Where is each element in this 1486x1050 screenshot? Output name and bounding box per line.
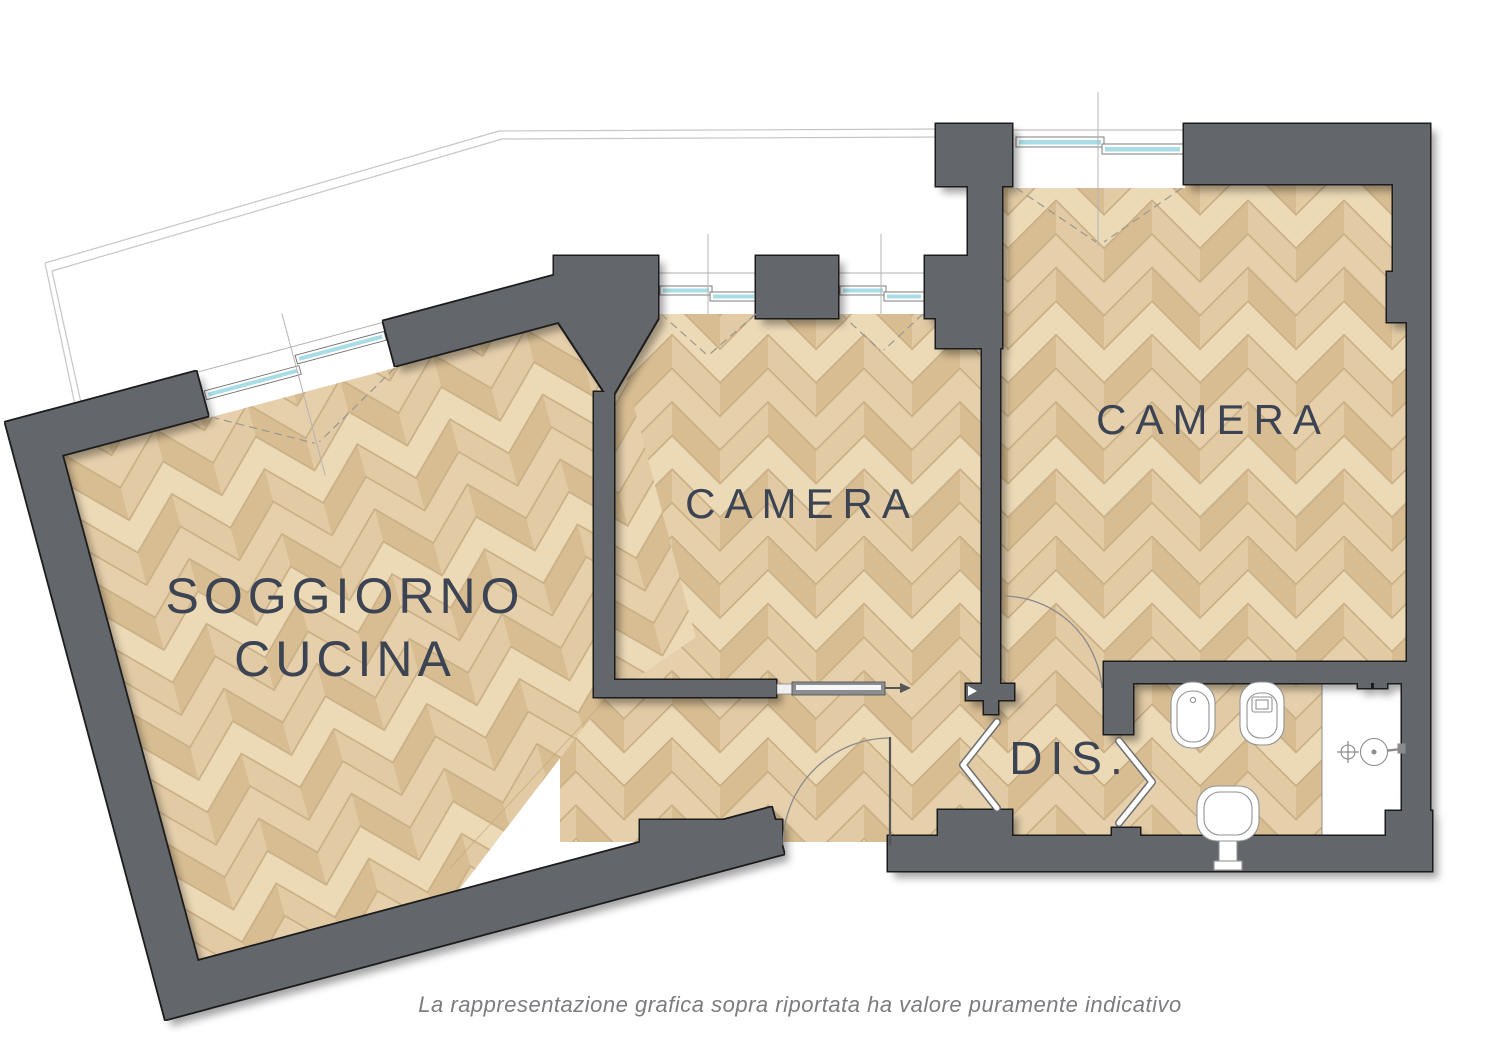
wall-soap-block-1	[1358, 678, 1371, 688]
label-dis: DIS.	[1009, 732, 1130, 784]
wall-camera2-topleft-chunk	[936, 124, 1012, 186]
wall-camera1-bottom	[594, 680, 776, 697]
floorplan-page: SOGGIORNO CUCINA CAMERA CAMERA DIS. La r…	[0, 0, 1486, 1050]
label-soggiorno: SOGGIORNO	[166, 568, 525, 624]
wall-shared-camera1-camera2	[982, 348, 1000, 686]
wall-pillar-camera1	[756, 256, 838, 318]
label-cucina: CUCINA	[234, 631, 456, 687]
bidet-icon	[1171, 682, 1215, 748]
wall-t-stub-tail	[984, 700, 998, 714]
wall-soap-block-2	[1374, 678, 1387, 688]
toilet-icon	[1240, 682, 1284, 745]
wall-camera2-left-chunk	[936, 294, 1002, 348]
wall-bifold-right-block	[1112, 828, 1140, 852]
label-camera-1: CAMERA	[685, 480, 919, 527]
wall-bathroom-left	[1104, 662, 1133, 734]
wall-camera2-left-upper	[968, 186, 1002, 294]
hall-floor	[560, 680, 1002, 842]
wall-junction	[554, 256, 658, 318]
wall-hall-bottom-step	[640, 820, 782, 854]
wall-corner-block	[1386, 811, 1432, 843]
floorplan-drawing: SOGGIORNO CUCINA CAMERA CAMERA DIS. La r…	[0, 0, 1486, 1050]
disclaimer-text: La rappresentazione grafica sopra riport…	[418, 992, 1181, 1017]
wall-bifold-left-block	[938, 810, 1012, 846]
label-camera-2: CAMERA	[1096, 396, 1330, 443]
wall-camera1-left	[594, 392, 614, 688]
